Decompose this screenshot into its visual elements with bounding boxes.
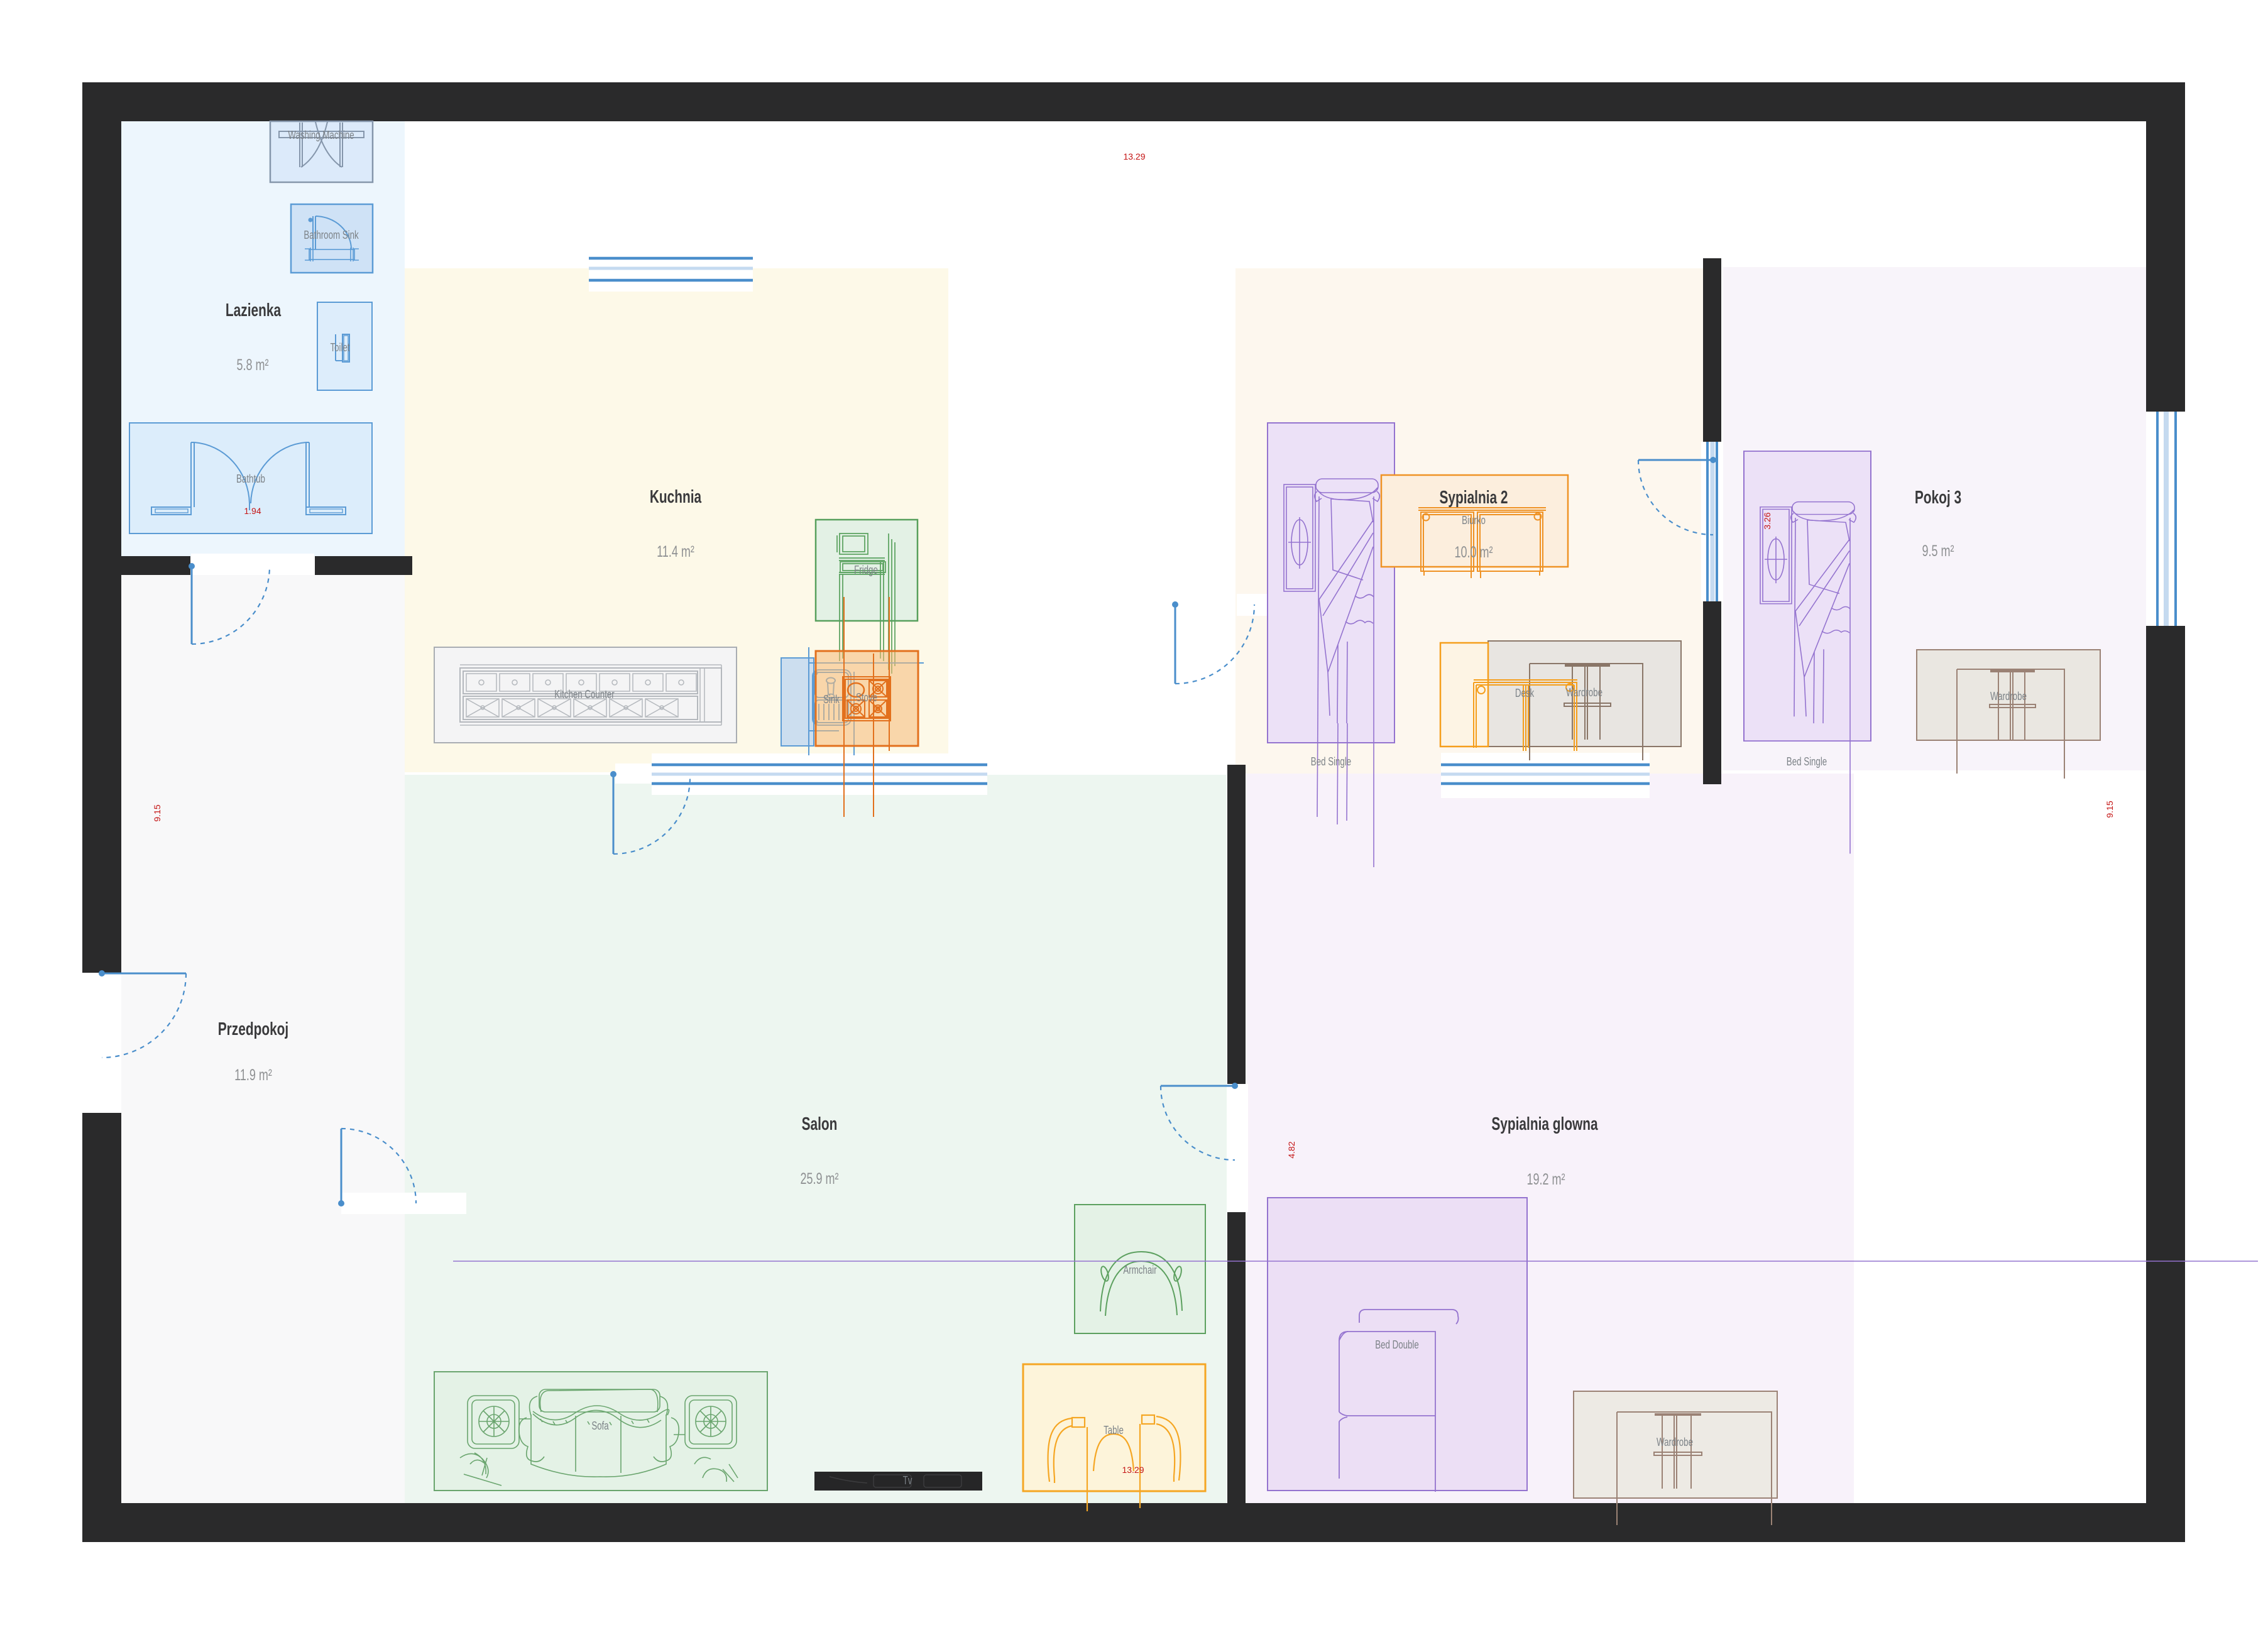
svg-text:Tv: Tv [903, 1474, 912, 1487]
svg-text:11.9 m²: 11.9 m² [234, 1066, 272, 1084]
svg-text:19.2 m²: 19.2 m² [1527, 1170, 1565, 1188]
svg-text:9.15: 9.15 [152, 804, 162, 821]
svg-text:Przedpokoj: Przedpokoj [218, 1019, 288, 1039]
svg-text:3.26: 3.26 [1762, 512, 1772, 529]
svg-text:Bathtub: Bathtub [236, 473, 265, 486]
svg-text:Sink: Sink [823, 693, 840, 706]
svg-text:Wardrobe: Wardrobe [1566, 686, 1602, 699]
svg-text:5.8 m²: 5.8 m² [237, 356, 269, 374]
svg-text:Kitchen Counter: Kitchen Counter [554, 688, 615, 701]
svg-text:Biurko: Biurko [1462, 514, 1486, 527]
svg-text:Sypialnia 2: Sypialnia 2 [1439, 488, 1508, 508]
svg-text:Wardrobe: Wardrobe [1990, 690, 2027, 703]
svg-text:9.5 m²: 9.5 m² [1922, 542, 1954, 560]
svg-text:9.15: 9.15 [2105, 801, 2115, 818]
svg-text:Toilet: Toilet [330, 341, 350, 354]
svg-text:Sofa: Sofa [591, 1420, 608, 1433]
svg-text:Sypialnia glowna: Sypialnia glowna [1491, 1114, 1598, 1134]
svg-text:Desk: Desk [1515, 687, 1535, 700]
svg-text:13.29: 13.29 [1122, 1465, 1144, 1475]
svg-text:Salon: Salon [802, 1114, 838, 1134]
svg-text:13.29: 13.29 [1123, 151, 1145, 161]
svg-text:Bed Single: Bed Single [1311, 755, 1351, 769]
svg-text:Bed Double: Bed Double [1375, 1338, 1419, 1352]
svg-text:11.4 m²: 11.4 m² [657, 542, 694, 561]
svg-text:Armchair: Armchair [1123, 1264, 1157, 1277]
svg-text:Bed Single: Bed Single [1787, 755, 1827, 769]
svg-text:1.94: 1.94 [244, 506, 261, 516]
svg-text:Kuchnia: Kuchnia [650, 487, 702, 507]
svg-text:Fridge: Fridge [854, 564, 878, 577]
svg-text:10.0 m²: 10.0 m² [1455, 543, 1493, 561]
svg-text:Bathroom Sink: Bathroom Sink [304, 229, 359, 242]
svg-text:Table: Table [1104, 1424, 1124, 1437]
svg-text:Washing Machine: Washing Machine [288, 129, 354, 142]
svg-text:4.82: 4.82 [1286, 1141, 1296, 1158]
svg-text:Lazienka: Lazienka [226, 300, 282, 320]
svg-text:Stove: Stove [856, 691, 877, 704]
svg-text:Pokoj 3: Pokoj 3 [1915, 488, 1961, 508]
svg-text:Wardrobe: Wardrobe [1657, 1436, 1693, 1449]
svg-text:25.9 m²: 25.9 m² [801, 1169, 839, 1188]
